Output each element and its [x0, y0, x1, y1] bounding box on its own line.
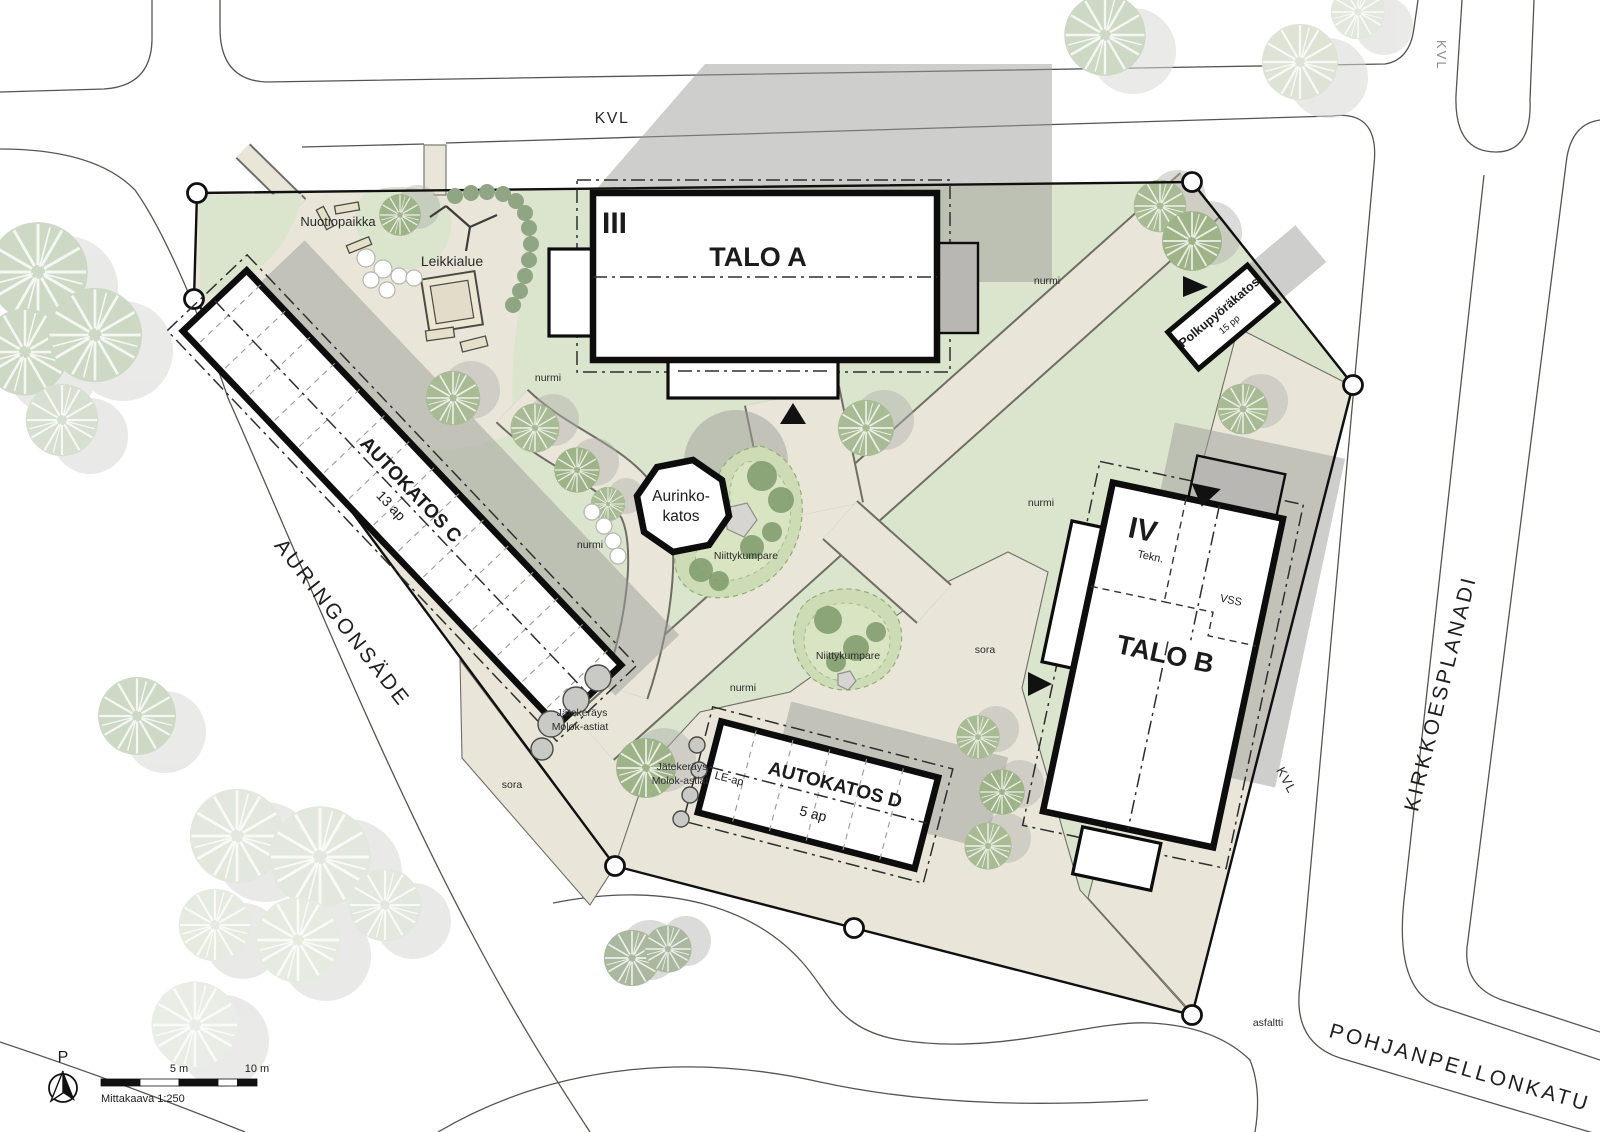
label-jatekerays-1b: Molok-astiat — [552, 721, 609, 733]
label-sora-1: sora — [502, 779, 523, 791]
label-nuotiopaikka: Nuotiopaikka — [300, 214, 376, 229]
aurinkokatos-line2: katos — [662, 508, 699, 525]
scale-10m-label: 10 m — [245, 1063, 269, 1075]
label-niittykumpare-2: Niittykumpare — [816, 650, 880, 662]
sandbox-icon — [421, 271, 483, 333]
label-leikkialue: Leikkialue — [421, 253, 483, 269]
site-plan-page: III TALO A IV Tekn. VSS TALO B AUTOKATOS… — [0, 0, 1600, 1132]
label-jatekerays-2a: Jätekeräys — [657, 761, 708, 773]
label-niittykumpare-1: Niittykumpare — [714, 550, 778, 562]
talo-a-name: TALO A — [709, 242, 806, 272]
kvl-topright-label: KVL — [1434, 40, 1449, 71]
scale-5m-label: 5 m — [170, 1063, 188, 1075]
talo-a-floors: III — [602, 207, 627, 240]
label-jatekerays-1a: Jätekeräys — [557, 707, 608, 719]
building-aurinkokatos: Aurinko- katos — [637, 460, 729, 552]
label-nurmi-2: nurmi — [577, 539, 603, 551]
scale-caption: Mittakaava 1:250 — [101, 1093, 185, 1105]
north-label: P — [58, 1049, 69, 1066]
label-nurmi-4: nurmi — [1034, 275, 1060, 287]
label-nurmi-3: nurmi — [730, 682, 756, 694]
label-nurmi-5: nurmi — [1028, 497, 1054, 509]
aurinkokatos-line1: Aurinko- — [652, 488, 710, 505]
label-nurmi-1: nurmi — [535, 372, 561, 384]
label-asfaltti: asfaltti — [1253, 1017, 1283, 1029]
label-jatekerays-2b: Molok-astiat — [652, 775, 709, 787]
site-plan-drawing: III TALO A IV Tekn. VSS TALO B AUTOKATOS… — [0, 0, 1600, 1132]
kvl-top-label: KVL — [595, 110, 630, 127]
label-sora-2: sora — [975, 644, 996, 656]
